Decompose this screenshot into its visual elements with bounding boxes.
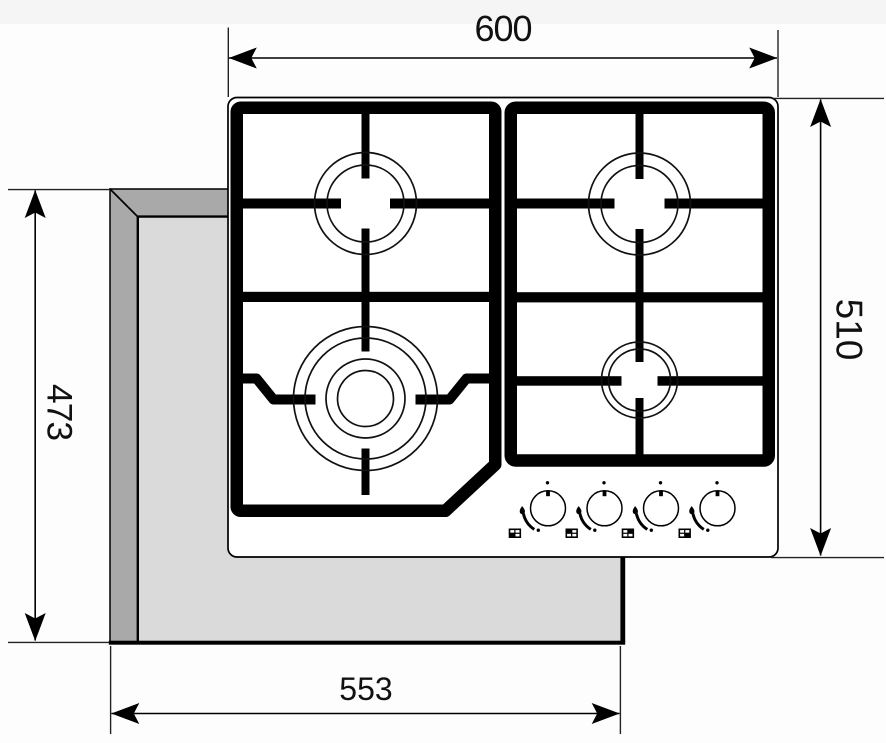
svg-text:510: 510: [829, 299, 870, 361]
svg-text:553: 553: [339, 671, 392, 707]
svg-text:473: 473: [40, 384, 80, 440]
svg-text:600: 600: [474, 8, 531, 49]
